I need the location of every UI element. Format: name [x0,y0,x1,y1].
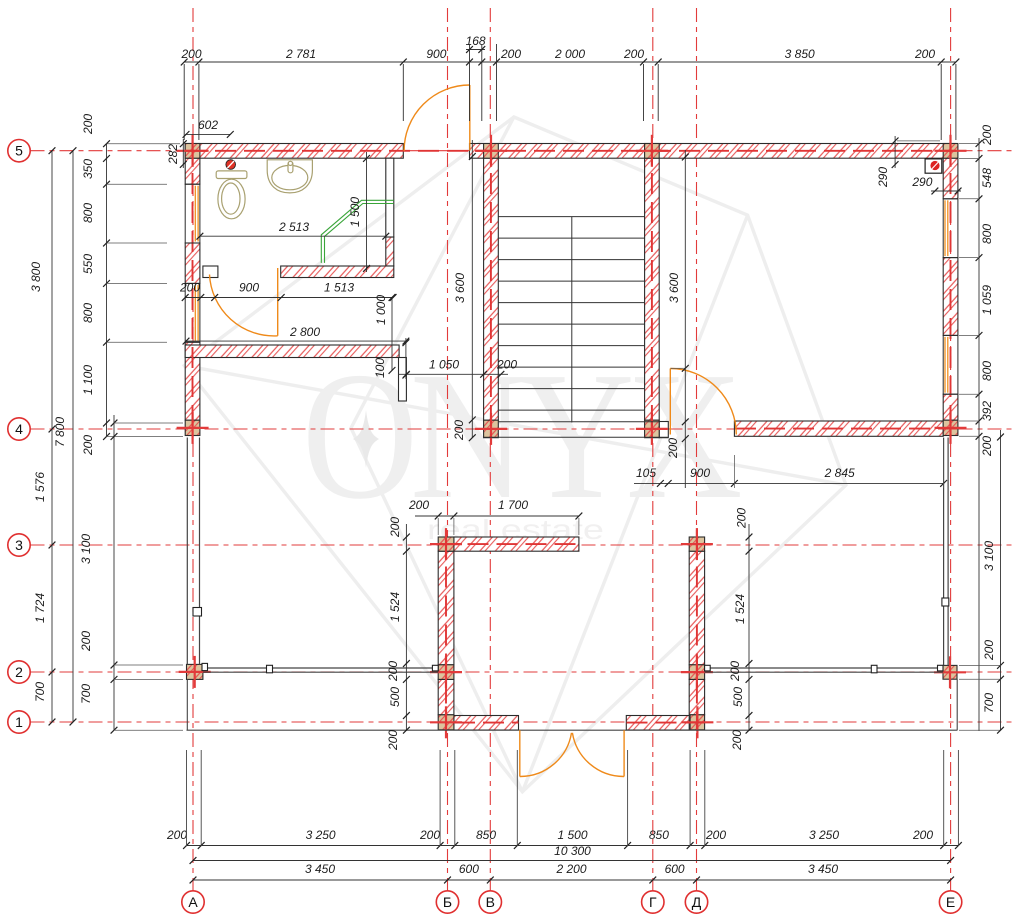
svg-text:3: 3 [15,537,23,553]
svg-text:200: 200 [388,517,402,538]
svg-text:2 845: 2 845 [824,466,855,480]
svg-text:1 576: 1 576 [33,472,47,502]
svg-text:700: 700 [33,682,47,702]
svg-text:800: 800 [980,361,994,381]
svg-text:3 800: 3 800 [29,262,43,292]
svg-text:2 513: 2 513 [278,220,309,234]
svg-text:1 524: 1 524 [733,594,747,624]
svg-text:1 724: 1 724 [33,593,47,623]
svg-text:Е: Е [946,894,955,910]
svg-text:Г: Г [649,894,657,910]
svg-text:200: 200 [914,47,935,61]
svg-text:600: 600 [665,862,685,876]
svg-text:200: 200 [79,631,93,652]
svg-text:1 500: 1 500 [557,828,587,842]
svg-text:200: 200 [705,828,726,842]
svg-text:200: 200 [500,47,521,61]
svg-text:200: 200 [386,730,400,751]
svg-text:2 000: 2 000 [554,47,585,61]
svg-text:850: 850 [649,828,669,842]
svg-text:200: 200 [419,828,440,842]
svg-text:700: 700 [982,693,996,713]
svg-text:1 524: 1 524 [388,592,402,622]
svg-text:7 800: 7 800 [53,417,67,447]
svg-text:200: 200 [452,420,466,441]
svg-text:548: 548 [980,168,994,188]
svg-text:200: 200 [496,358,517,372]
svg-text:3 250: 3 250 [306,828,336,842]
svg-text:3 850: 3 850 [785,47,815,61]
svg-text:200: 200 [728,661,742,682]
svg-text:Д: Д [692,894,702,910]
svg-text:200: 200 [179,281,200,295]
svg-text:200: 200 [81,435,95,456]
svg-text:3 450: 3 450 [808,862,838,876]
svg-text:3 600: 3 600 [667,273,681,303]
svg-text:1 050: 1 050 [429,358,459,372]
svg-text:700: 700 [79,684,93,704]
svg-text:200: 200 [623,47,644,61]
svg-text:200: 200 [81,114,95,135]
svg-text:392: 392 [980,401,994,421]
svg-text:5: 5 [15,143,23,159]
svg-text:4: 4 [15,421,23,437]
svg-text:200: 200 [180,47,201,61]
svg-text:282: 282 [166,144,180,165]
svg-text:550: 550 [81,254,95,274]
svg-text:600: 600 [459,862,479,876]
svg-text:1 513: 1 513 [324,281,354,295]
svg-text:1: 1 [15,714,23,730]
svg-text:3 100: 3 100 [79,534,93,564]
svg-text:850: 850 [476,828,496,842]
svg-text:200: 200 [386,661,400,682]
svg-text:3 450: 3 450 [305,862,335,876]
svg-text:200: 200 [666,438,680,459]
svg-text:800: 800 [980,224,994,244]
svg-text:200: 200 [408,498,429,512]
svg-text:3 100: 3 100 [982,541,996,571]
svg-text:900: 900 [690,466,710,480]
svg-text:1 000: 1 000 [374,295,388,325]
svg-text:2: 2 [15,664,23,680]
svg-text:168: 168 [466,34,486,48]
svg-text:200: 200 [730,730,744,751]
svg-text:100: 100 [373,358,387,378]
svg-text:1 700: 1 700 [498,498,528,512]
svg-text:500: 500 [388,687,402,707]
svg-text:105: 105 [636,466,656,480]
svg-text:602: 602 [198,118,218,132]
svg-text:Б: Б [443,894,452,910]
svg-text:290: 290 [876,167,890,188]
svg-text:200: 200 [980,436,994,457]
svg-text:200: 200 [166,828,187,842]
svg-text:3 250: 3 250 [809,828,839,842]
svg-text:А: А [188,894,198,910]
svg-text:350: 350 [81,159,95,179]
svg-text:3 600: 3 600 [453,273,467,303]
svg-text:1 500: 1 500 [348,197,362,227]
svg-text:200: 200 [912,828,933,842]
svg-text:2 800: 2 800 [289,325,320,339]
svg-text:10 300: 10 300 [554,844,591,858]
svg-text:200: 200 [980,125,994,146]
svg-text:900: 900 [239,281,259,295]
svg-text:800: 800 [81,303,95,323]
svg-text:2 781: 2 781 [285,47,316,61]
svg-text:2 200: 2 200 [555,862,586,876]
svg-text:1 059: 1 059 [980,285,994,315]
svg-text:1 100: 1 100 [81,365,95,395]
svg-text:800: 800 [81,203,95,223]
svg-text:200: 200 [735,508,749,529]
svg-text:290: 290 [911,175,932,189]
svg-text:900: 900 [426,47,446,61]
svg-text:200: 200 [982,640,996,661]
svg-text:500: 500 [731,687,745,707]
svg-text:В: В [486,894,495,910]
